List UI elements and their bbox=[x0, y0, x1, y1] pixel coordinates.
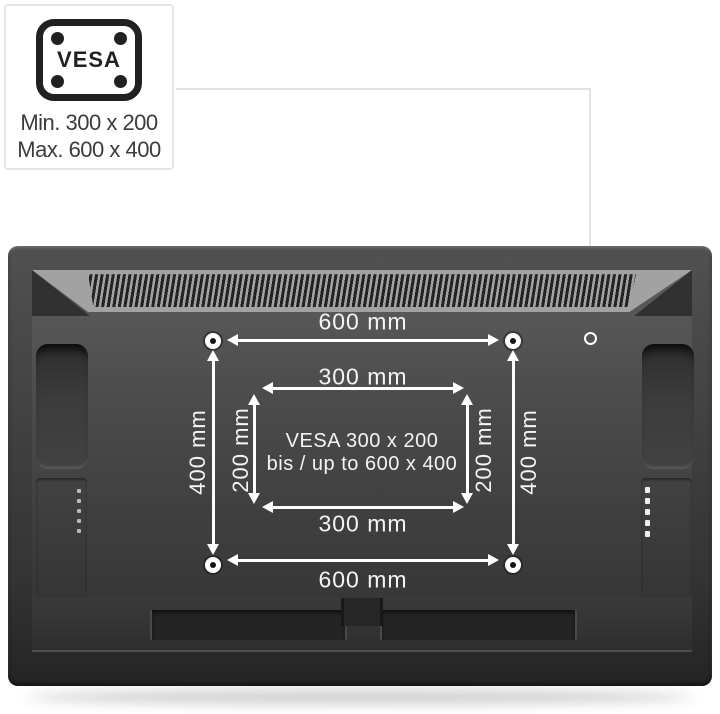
dim-label-top-600: 600 mm bbox=[318, 309, 407, 336]
dim-arrow-right-400 bbox=[512, 360, 515, 545]
screw-dot bbox=[645, 520, 650, 526]
screw-dot bbox=[645, 509, 650, 515]
vesa-badge-card: VESA Min. 300 x 200 Max. 600 x 400 bbox=[4, 4, 174, 170]
mount-hole-top-right bbox=[505, 333, 521, 349]
screw-dot bbox=[77, 509, 81, 513]
screw-dot bbox=[645, 498, 650, 504]
dim-arrow-top-600 bbox=[237, 339, 489, 342]
bottom-bar-left bbox=[150, 610, 347, 640]
bottom-bar-right bbox=[380, 610, 577, 640]
dim-arrow-bottom-300 bbox=[272, 506, 454, 509]
dim-label-left-200: 200 mm bbox=[228, 407, 254, 492]
handle-left bbox=[36, 344, 88, 469]
badge-min-size: Min. 300 x 200 bbox=[6, 110, 172, 136]
handle-right bbox=[642, 344, 694, 469]
vesa-plate-icon: VESA bbox=[36, 19, 142, 101]
dim-label-bottom-600: 600 mm bbox=[318, 567, 407, 594]
center-vesa-range-line1: VESA 300 x 200 bbox=[267, 430, 458, 453]
screw-dot bbox=[77, 499, 81, 503]
product-diagram: VESA Min. 300 x 200 Max. 600 x 400 bbox=[0, 0, 720, 714]
connector-endpoint-circle bbox=[584, 332, 597, 345]
tv-drop-shadow bbox=[26, 690, 694, 704]
mount-hole-bottom-left bbox=[205, 557, 221, 573]
vent-slats bbox=[32, 270, 692, 312]
vesa-plate-hole-icon bbox=[51, 32, 64, 45]
dim-label-right-400: 400 mm bbox=[516, 409, 542, 494]
bottom-center-tab bbox=[341, 598, 383, 626]
bottom-strip bbox=[32, 598, 692, 652]
screw-dot bbox=[77, 519, 81, 523]
screw-dot bbox=[645, 487, 650, 493]
connector-line-horizontal bbox=[176, 88, 591, 90]
side-panel-left bbox=[36, 478, 87, 597]
dim-label-left-400: 400 mm bbox=[185, 409, 211, 494]
dim-label-bottom-300: 300 mm bbox=[318, 511, 407, 538]
mount-hole-bottom-right bbox=[505, 557, 521, 573]
dim-label-top-300: 300 mm bbox=[318, 364, 407, 391]
vesa-plate-label: VESA bbox=[57, 47, 121, 73]
dim-arrow-right-200 bbox=[466, 404, 469, 494]
center-vesa-range-line2: bis / up to 600 x 400 bbox=[267, 453, 458, 476]
screw-dot bbox=[645, 531, 650, 537]
side-panel-right bbox=[641, 478, 692, 597]
dim-label-right-200: 200 mm bbox=[471, 407, 497, 492]
vesa-plate-hole-icon bbox=[51, 75, 64, 88]
screw-dot bbox=[77, 489, 81, 493]
vesa-plate-hole-icon bbox=[114, 75, 127, 88]
badge-max-size: Max. 600 x 400 bbox=[6, 137, 172, 163]
vesa-plate-hole-icon bbox=[114, 32, 127, 45]
screw-dot bbox=[77, 529, 81, 533]
mount-hole-top-left bbox=[205, 333, 221, 349]
vent-grille bbox=[32, 270, 692, 312]
center-vesa-range-label: VESA 300 x 200 bis / up to 600 x 400 bbox=[267, 430, 458, 476]
dim-arrow-bottom-600 bbox=[237, 559, 489, 562]
dim-arrow-left-400 bbox=[212, 360, 215, 545]
